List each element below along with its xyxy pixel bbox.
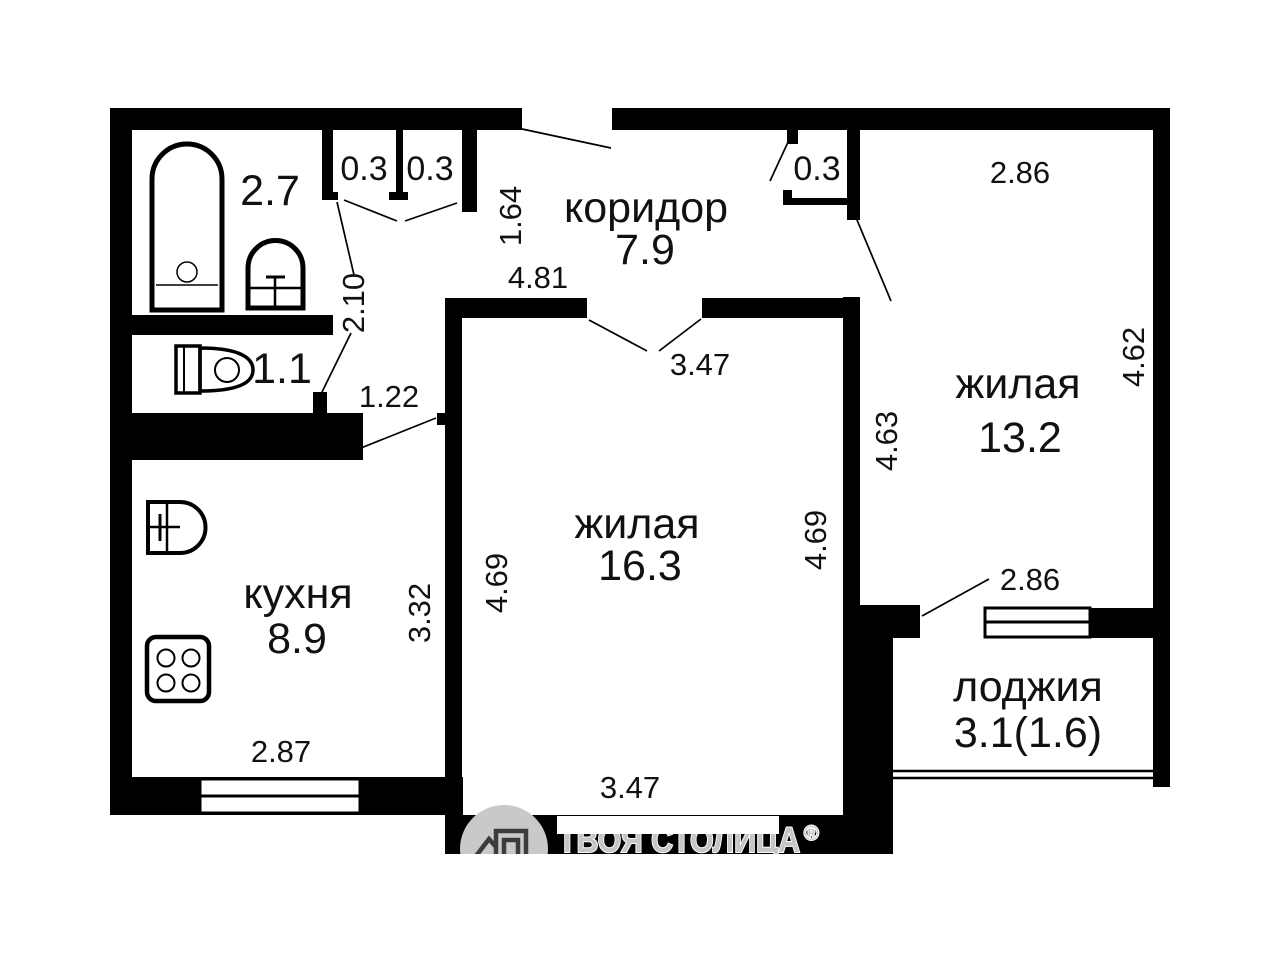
wall-left-outer [110,108,132,815]
closet-right-area-label: 0.3 [793,150,840,188]
wall-bathroom-bottom [110,315,333,335]
wall-loggia-left [843,638,893,854]
dim-living-door: 3.47 [670,347,730,382]
bath-wall-leader-upper [337,202,354,275]
closet-right-bottom-wall [783,198,847,205]
dim-loggia-width: 2.86 [1000,562,1060,597]
dim-entry-depth: 1.64 [493,186,528,246]
floor-plan-image: 2.7 0.3 0.3 0.3 коридор 7.9 1.1 жилая 16… [0,0,1280,961]
wall-room2-bottom-left [843,605,920,638]
dim-living-left: 4.69 [479,553,514,613]
wall-top-right [612,108,1170,130]
toilet-door-jamb [313,392,327,413]
watermark: ТВОЯ СТОЛИЦА ® [460,805,819,893]
closet-left-area-label: 0.3 [340,150,387,188]
dim-kitchen-passage: 1.22 [359,379,419,414]
kitchen-sink [148,502,206,553]
bathroom-area-label: 2.7 [240,167,300,215]
wall-right-outer [1153,108,1170,787]
loggia-railing [893,771,1153,778]
closet-divider [396,128,403,194]
wall-top-left [110,108,522,130]
closet-middle-door-line [405,203,457,221]
closet-right-door-line [770,140,789,181]
floor-plan-page: 2.7 0.3 0.3 0.3 коридор 7.9 1.1 жилая 16… [0,0,1280,961]
dim-kitchen-depth: 3.32 [402,583,437,643]
wall-room2-left-upper [847,128,860,220]
passage-leader [361,418,436,448]
kitchen-window [200,779,360,813]
dim-living-right: 4.69 [798,510,833,570]
bathtub [152,144,222,310]
loggia-window [985,608,1090,637]
corridor-area-label: 7.9 [615,226,675,274]
closet-divider-jamb [389,192,408,200]
loggia-name-label: лоджия [953,663,1103,711]
wall-bathroom-right [322,128,333,200]
toilet-fixture [176,346,253,393]
loggia-area-label: 3.1(1.6) [954,709,1102,757]
dim-room2-left: 4.63 [869,411,904,471]
corridor-name-label: коридор [564,184,728,232]
dim-room2-width: 2.86 [990,155,1050,190]
closet-middle-area-label: 0.3 [406,150,453,188]
watermark-white-strip [557,816,779,834]
passage-jamb [437,413,462,425]
toilet-area-label: 1.1 [252,345,312,393]
loggia-door-leader [922,579,989,616]
dim-corridor-width: 4.81 [508,260,568,295]
living-main-area-label: 16.3 [598,542,682,590]
dim-bath-wall: 2.10 [336,273,371,333]
living-main-name-label: жилая [574,500,699,548]
wall-room2-bottom-right [1090,608,1153,638]
room2-door-line [857,220,891,301]
entrance-door-line [522,129,611,148]
watermark-reg-mark: ® [804,823,819,845]
wall-room2-left-lower [843,297,860,605]
closet-left-door-line [344,200,397,221]
dim-kitchen-width: 2.87 [251,734,311,769]
kitchen-name-label: кухня [243,570,352,618]
stove [147,637,209,701]
kitchen-area-label: 8.9 [267,615,327,663]
living-second-name-label: жилая [955,360,1080,408]
closet-middle-right-wall [462,128,477,212]
wall-living-left [445,298,462,854]
wall-living-top-right [702,298,860,318]
wall-living-top-left [445,298,587,318]
dim-room2-right: 4.62 [1116,327,1151,387]
dim-living-width: 3.47 [600,770,660,805]
bath-wall-leader-lower [322,333,351,392]
bathroom-door-jamb [322,192,338,200]
room-labels: 2.7 0.3 0.3 0.3 коридор 7.9 1.1 жилая 16… [240,150,1103,757]
living-second-area-label: 13.2 [978,414,1062,462]
living-door-line-left [589,320,647,351]
wall-kitchen-top [110,413,363,460]
washbasin [248,240,303,308]
